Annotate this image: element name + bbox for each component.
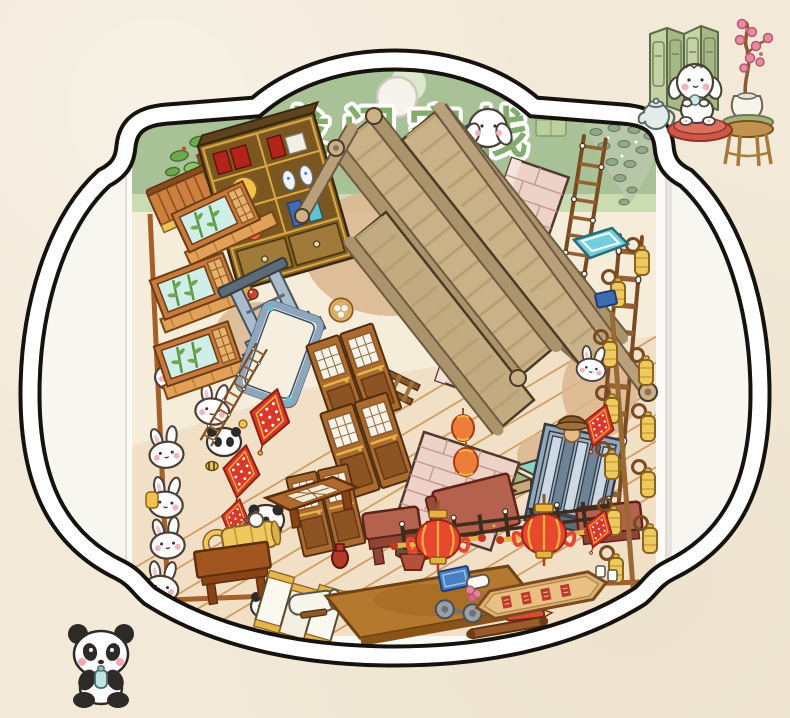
scene-svg: 龙门客栈 (0, 0, 790, 718)
plum-blossom-vase-on-stool (723, 20, 773, 167)
plum-blossoms (736, 20, 773, 73)
product-photo-stage: 龙门客栈 (0, 0, 790, 718)
bee-sticker (206, 462, 218, 471)
dumpling-plate (329, 298, 352, 321)
panda-drink-bottle (95, 670, 107, 688)
blue-book (595, 290, 617, 308)
decoration-panda (68, 624, 134, 708)
